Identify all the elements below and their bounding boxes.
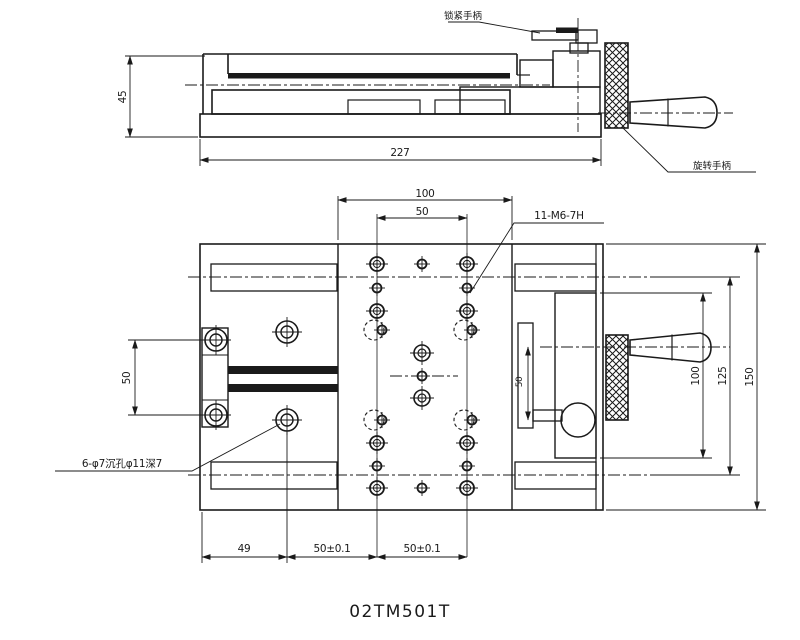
dim-bottom-49: 49 <box>238 543 251 555</box>
label-rotate-handle: 旋转手柄 <box>693 160 731 172</box>
base-plate-side <box>200 114 601 137</box>
drawing-title: 02TM501T <box>349 602 451 622</box>
plan-view-dimensions <box>55 196 766 563</box>
centerlines <box>188 277 730 475</box>
knurled-knob-plan <box>606 335 628 420</box>
leader-lock-handle <box>448 22 540 33</box>
cad-drawing: 45 227 锁紧手柄 旋转手柄 <box>0 0 800 640</box>
dim-bottom-50-1: 50±0.1 <box>313 543 350 555</box>
handle-plan <box>630 333 711 362</box>
rail <box>228 366 338 374</box>
plan-outline <box>200 244 603 510</box>
lock-lever <box>532 28 597 54</box>
lock-ball <box>561 403 595 437</box>
dim-screw-50: 50 <box>515 376 525 387</box>
rail <box>228 384 338 392</box>
slot <box>515 264 596 291</box>
side-view <box>185 18 733 137</box>
leader-thread-callout <box>470 223 604 293</box>
callout-counterbore: 6-φ7沉孔φ11深7 <box>82 457 162 470</box>
slot <box>211 264 337 291</box>
rail-band <box>228 73 510 79</box>
micrometer-assembly-plan <box>518 293 711 458</box>
dim-right-125: 125 <box>717 366 729 385</box>
dim-right-150: 150 <box>744 367 756 386</box>
leader-rotate-handle <box>622 127 756 172</box>
dim-227: 227 <box>390 147 409 159</box>
knurled-knob-side <box>605 43 628 128</box>
slot <box>515 462 596 489</box>
dim-left-50: 50 <box>121 372 133 385</box>
label-lock-handle: 锁紧手柄 <box>444 10 482 22</box>
slot <box>211 462 337 489</box>
drawing-sheet: 45 227 锁紧手柄 旋转手柄 <box>0 0 800 640</box>
dim-top-100: 100 <box>415 188 434 200</box>
side-view-dimensions <box>125 56 601 166</box>
plan-view <box>188 214 730 557</box>
carriage-side <box>212 90 510 114</box>
handle-side <box>630 97 717 128</box>
dim-bottom-50-2: 50±0.1 <box>403 543 440 555</box>
dim-right-100: 100 <box>690 366 702 385</box>
dim-top-50: 50 <box>416 206 429 218</box>
callout-11-m6-7h: 11-M6-7H <box>534 210 584 222</box>
dim-45: 45 <box>117 91 129 104</box>
